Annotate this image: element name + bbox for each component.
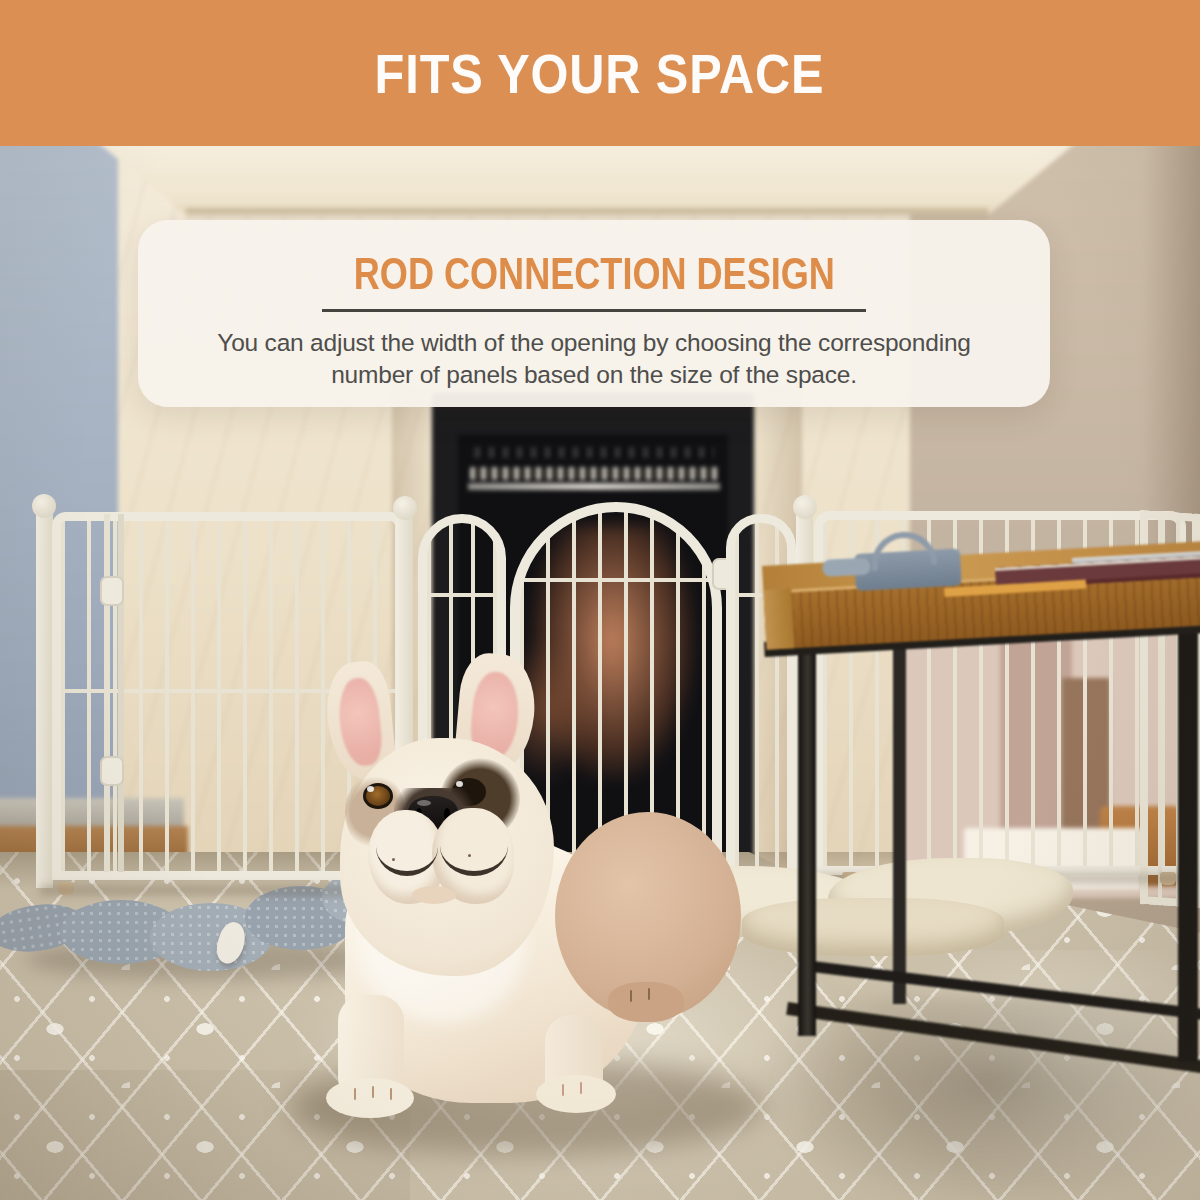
dog-mouth-line-right bbox=[440, 816, 508, 876]
card-body: You can adjust the width of the opening … bbox=[217, 327, 971, 391]
toe-line bbox=[354, 1088, 356, 1100]
banner-title: FITS YOUR SPACE bbox=[375, 41, 825, 106]
card-heading: ROD CONNECTION DESIGN bbox=[353, 252, 834, 296]
pouch-handle bbox=[868, 529, 937, 572]
table-leg-back bbox=[893, 642, 906, 1004]
product-image: ROD CONNECTION DESIGN You can adjust the… bbox=[0, 0, 1200, 1200]
dog-chin bbox=[412, 886, 456, 904]
dog-mouth-line-left bbox=[376, 818, 438, 876]
dog-front-left-paw bbox=[326, 1078, 414, 1118]
eye-highlight bbox=[456, 781, 463, 787]
card-body-line2: number of panels based on the size of th… bbox=[217, 359, 971, 391]
table-stretcher-near bbox=[786, 1002, 1200, 1075]
title-banner: FITS YOUR SPACE bbox=[0, 0, 1200, 146]
toe-line bbox=[562, 1084, 564, 1096]
dog-front-right-paw bbox=[536, 1075, 616, 1113]
toe-line bbox=[648, 988, 650, 1000]
living-room-photo bbox=[0, 0, 1200, 1200]
toe-line bbox=[580, 1082, 582, 1094]
nose-highlight bbox=[417, 800, 431, 806]
toe-line bbox=[372, 1086, 374, 1098]
dog-hind-paw bbox=[608, 982, 684, 1022]
whisker-dot bbox=[392, 858, 395, 861]
divider-line bbox=[322, 309, 866, 312]
toe-line bbox=[390, 1088, 392, 1100]
table-leg-right bbox=[1178, 622, 1198, 1062]
eye-highlight bbox=[367, 786, 374, 792]
info-card: ROD CONNECTION DESIGN You can adjust the… bbox=[138, 220, 1050, 407]
dog-left-eye bbox=[363, 783, 393, 809]
card-body-line1: You can adjust the width of the opening … bbox=[217, 327, 971, 359]
toe-line bbox=[630, 990, 632, 1002]
gray-fabric bbox=[822, 557, 871, 576]
french-bulldog bbox=[290, 640, 810, 1170]
whisker-dot bbox=[468, 854, 471, 857]
